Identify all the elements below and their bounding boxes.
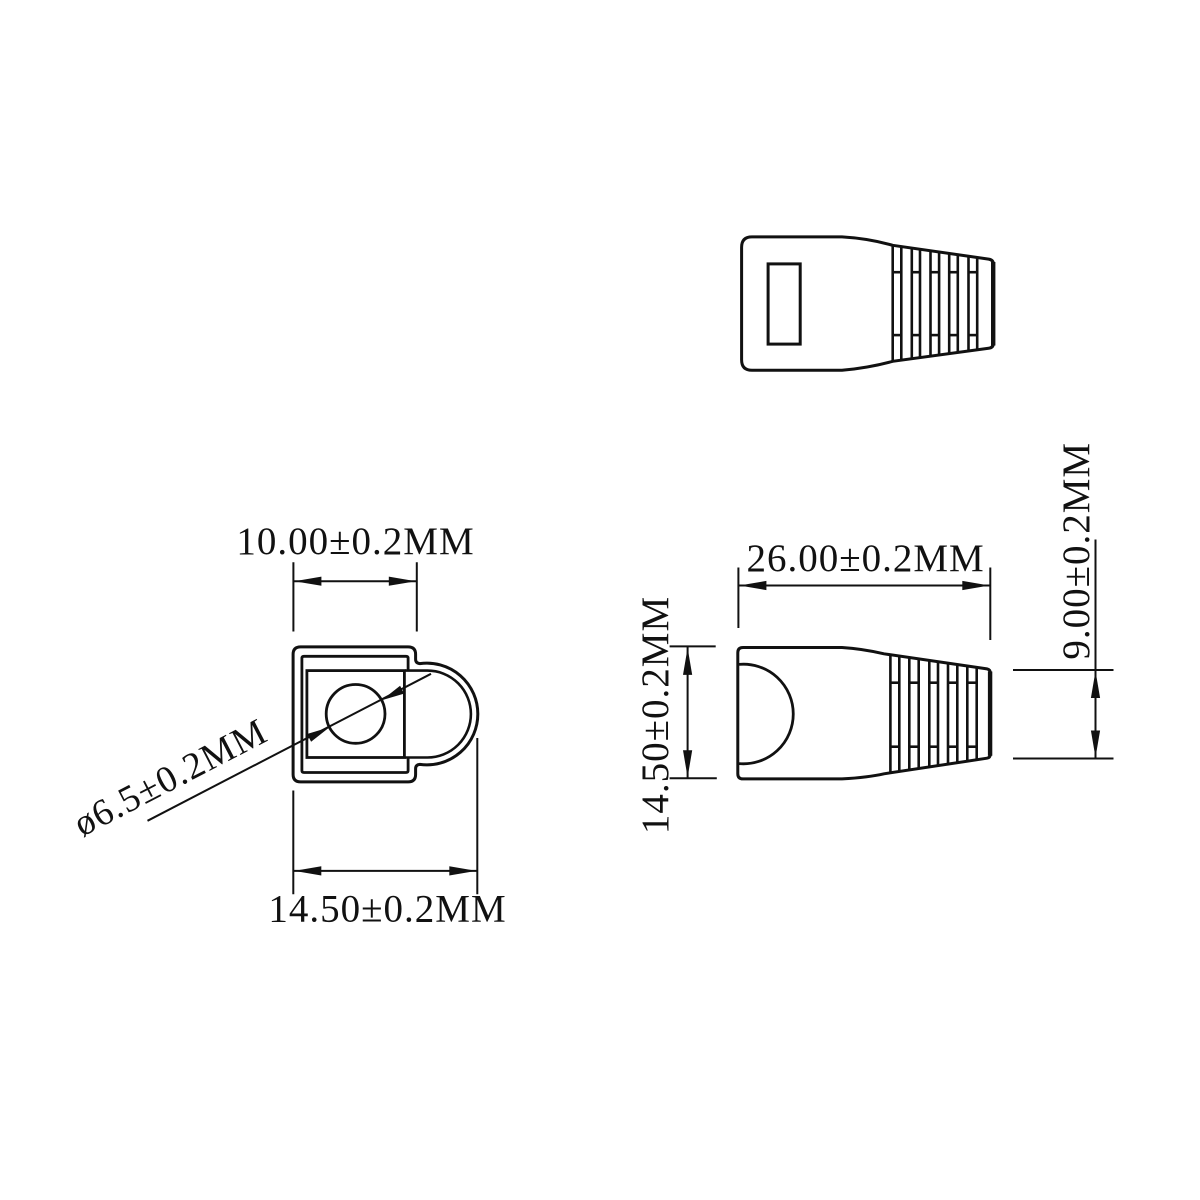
svg-text:14.50±0.2MM: 14.50±0.2MM [634,596,677,834]
svg-text:10.00±0.2MM: 10.00±0.2MM [236,520,474,563]
svg-text:26.00±0.2MM: 26.00±0.2MM [746,537,984,580]
svg-text:9.00±0.2MM: 9.00±0.2MM [1055,442,1098,660]
svg-text:14.50±0.2MM: 14.50±0.2MM [268,888,506,931]
